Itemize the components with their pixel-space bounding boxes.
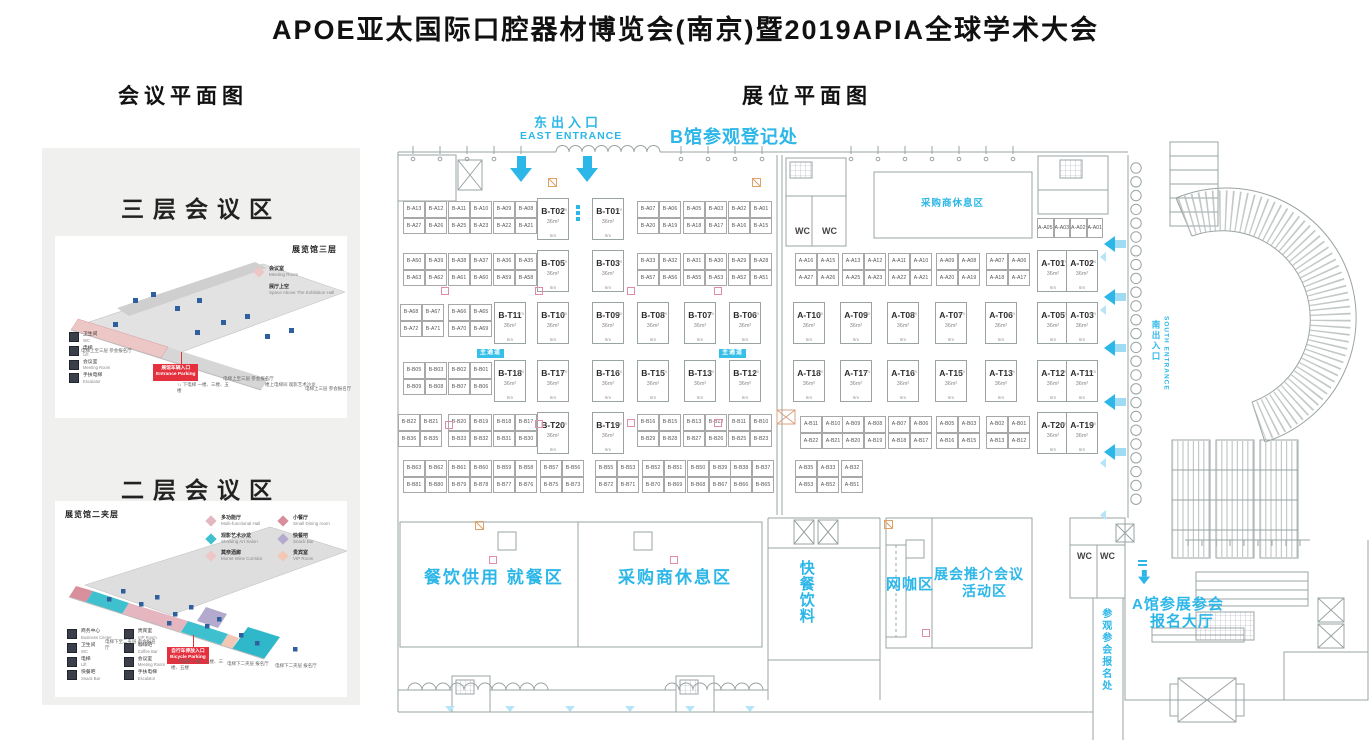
booth-area: 36m² [841, 381, 871, 387]
booth-block: B-B05B-B03B-B09B-B08 [403, 362, 447, 395]
booth: B-A61 [448, 270, 470, 287]
booth-dim: 6m [495, 395, 525, 400]
booth: A-A18 [986, 270, 1008, 287]
booth-block: B-B18B-B17B-B31B-B30 [493, 414, 537, 447]
booth-dim: 6m [794, 337, 824, 342]
utility-marker-icon [922, 629, 930, 637]
booth: A-B15 [958, 433, 980, 450]
booth: A-A10 [910, 253, 932, 270]
booth-dim: 6m [593, 337, 623, 342]
booth: B-B19 [470, 414, 492, 431]
booth-block: B-A13B-A12B-A27B-A26 [403, 201, 447, 234]
booth-dim: 6m [1038, 447, 1068, 452]
booth: B-B68 [687, 477, 709, 494]
booth-dim: 6m [561, 369, 567, 374]
booth-dim: 6m [708, 369, 714, 374]
booth-standard: A-T0136m²6m6m [1037, 250, 1069, 292]
booth-dim: 6m [685, 337, 715, 342]
arrow-down-icon [510, 156, 532, 182]
booth-dim: 6m [616, 311, 622, 316]
booth-block: A-A09A-A08A-A20A-A19 [936, 253, 980, 286]
booth: B-B57 [540, 460, 562, 477]
booth-block: B-B50B-B39B-B68B-B67 [687, 460, 731, 493]
booth-dim: 6m [730, 337, 760, 342]
booth-dim: 6m [1009, 369, 1015, 374]
booth: A-B18 [888, 433, 910, 450]
booth: A-B20 [842, 433, 864, 450]
booth-block: B-A36B-A35B-A59B-A58 [493, 253, 537, 286]
booth: A-A01 [1087, 218, 1104, 238]
booth: A-A23 [864, 270, 886, 287]
booth: B-B25 [728, 431, 750, 448]
booth: B-B66 [730, 477, 752, 494]
booth-block: B-A66B-A65B-A70B-A69 [448, 304, 492, 337]
booth-block: B-B22B-B21B-B36B-B35 [398, 414, 442, 447]
booth-standard: A-T0936m²6m6m [840, 302, 872, 344]
triangle-down-icon [625, 706, 635, 712]
booth: B-B29 [637, 431, 659, 448]
booth: B-A68 [400, 304, 422, 321]
booth: B-A29 [728, 253, 750, 270]
booth-dim: 6m [1090, 311, 1096, 316]
booth: A-B53 [795, 477, 817, 494]
booth-dim: 6m [616, 207, 622, 212]
booth: B-A56 [659, 270, 681, 287]
booth: A-A17 [1008, 270, 1030, 287]
booth: B-A72 [400, 321, 422, 338]
booth-standard: B-T1336m²6m6m [684, 360, 716, 402]
booth: B-A59 [493, 270, 515, 287]
booth: B-B39 [709, 460, 731, 477]
booth-area: 36m² [593, 271, 623, 277]
booth: B-A11 [448, 201, 470, 218]
booth-dim: 6m [538, 395, 568, 400]
utility-marker-icon [535, 287, 543, 295]
booth: B-B67 [709, 477, 731, 494]
booth-dim: 6m [1067, 337, 1097, 342]
booth-block: B-B02B-B01B-B07B-B06 [448, 362, 492, 395]
booth-dim: 6m [794, 395, 824, 400]
booth: A-A20 [936, 270, 958, 287]
booth-area: 36m² [1067, 323, 1097, 329]
booth-standard: B-T0736m²6m6m [684, 302, 716, 344]
floor-label: 报名大厅 [1150, 613, 1214, 631]
booth-dim: 6m [936, 395, 966, 400]
booth: A-B17 [910, 433, 932, 450]
booth-area: 36m² [538, 381, 568, 387]
booth: B-A71 [422, 321, 444, 338]
booth-area: 36m² [593, 323, 623, 329]
booth: B-B03 [425, 362, 447, 379]
booth-dim: 6m [841, 337, 871, 342]
booth-block: B-B11B-B10B-B25B-B23 [728, 414, 772, 447]
utility-marker-icon [714, 419, 722, 427]
booth-block: B-A05B-A03B-A18B-A17 [683, 201, 727, 234]
booth: B-B37 [752, 460, 774, 477]
booth: A-B12 [1008, 433, 1030, 450]
booth: B-A20 [637, 218, 659, 235]
booth: B-B70 [642, 477, 664, 494]
floor-label: 网咖区 [886, 576, 934, 594]
booth: B-B78 [470, 477, 492, 494]
arrow-dash-icon [1138, 564, 1147, 566]
booth-standard: A-T1636m²6m6m [887, 360, 919, 402]
booth: A-B51 [841, 477, 863, 494]
booth: B-B35 [420, 431, 442, 448]
booth-dim: 6m [518, 369, 524, 374]
booth-area: 36m² [888, 381, 918, 387]
booth: A-B22 [800, 433, 822, 450]
booth-dim: 6m [888, 337, 918, 342]
booth-block: A-B05A-B03A-B16A-B15 [936, 416, 980, 449]
booth: B-A21 [515, 218, 537, 235]
booth-area: 36m² [538, 219, 568, 225]
booth-block: B-A50B-A39B-A63B-A62 [403, 253, 447, 286]
booth-block: A-A11A-A10A-A22A-A21 [888, 253, 932, 286]
booth-block: B-A09B-A08B-A22B-A21 [493, 201, 537, 234]
booth: B-B21 [420, 414, 442, 431]
booth: A-B16 [936, 433, 958, 450]
booth-dim: 6m [661, 311, 667, 316]
booth-dim: 6m [593, 233, 623, 238]
booth-strip: A-A05A-A03A-A02A-A01 [1037, 218, 1103, 238]
booth: B-B02 [448, 362, 470, 379]
booth: B-B11 [728, 414, 750, 431]
booth-block: A-B07A-B06A-B18A-B17 [888, 416, 932, 449]
booth-dim: 6m [936, 337, 966, 342]
booth-standard: A-T1836m²6m6m [793, 360, 825, 402]
booth-standard: B-T1936m²6m6m [592, 412, 624, 454]
aisle-dots-icon [576, 205, 580, 223]
booth: B-B16 [637, 414, 659, 431]
floor-label: SOUTH ENTRANCE [1162, 316, 1170, 391]
booth-dim: 6m [561, 259, 567, 264]
booth-block: A-B09A-B08A-B20A-B19 [842, 416, 886, 449]
booth-area: 36m² [495, 381, 525, 387]
booth: B-B59 [493, 460, 515, 477]
booth-block: B-A02B-A01B-A16B-A15 [728, 201, 772, 234]
booth-dim: 6m [561, 207, 567, 212]
booth-block: A-A07A-A06A-A18A-A17 [986, 253, 1030, 286]
booth: A-A27 [795, 270, 817, 287]
booth: A-B13 [986, 433, 1008, 450]
booth-area: 36m² [593, 219, 623, 225]
booth: B-A05 [683, 201, 705, 218]
booth: A-A06 [1008, 253, 1030, 270]
booth: B-B33 [448, 431, 470, 448]
booth: B-B22 [398, 414, 420, 431]
floor-label: 采购商休息区 [921, 198, 984, 209]
booth: B-B50 [687, 460, 709, 477]
booth-area: 36m² [538, 323, 568, 329]
booth-standard: A-T2036m²6m6m [1037, 412, 1069, 454]
booth-block: B-B52B-B51B-B70B-B69 [642, 460, 686, 493]
booth-block: B-B55B-B53B-B72B-B71 [595, 460, 639, 493]
booth-dim: 6m [864, 311, 870, 316]
booth-area: 36m² [1038, 271, 1068, 277]
booth: A-B32 [841, 460, 863, 477]
booth-block: A-A13A-A12A-A25A-A23 [842, 253, 886, 286]
arrow-left-icon [1104, 394, 1126, 410]
booth: B-A33 [637, 253, 659, 270]
floor-label: 活动区 [962, 583, 1007, 600]
floor-label: B馆参观登记处 [670, 127, 798, 148]
booth-dim: 6m [1067, 447, 1097, 452]
booth-standard: B-T2036m²6m6m [537, 412, 569, 454]
booth-block: A-A16A-A15A-A27A-A26 [795, 253, 839, 286]
booth-standard: B-T1236m²6m6m [729, 360, 761, 402]
booth: B-B81 [403, 477, 425, 494]
booth-standard: B-T0236m²6m6m [537, 198, 569, 240]
booth: B-A62 [425, 270, 447, 287]
booth: A-B52 [817, 477, 839, 494]
booth: B-A31 [683, 253, 705, 270]
booth: B-B55 [595, 460, 617, 477]
booth-dim: 6m [1090, 421, 1096, 426]
booth-area: 36m² [538, 271, 568, 277]
booth: B-B23 [750, 431, 772, 448]
utility-marker-icon [489, 556, 497, 564]
booth-dim: 6m [638, 395, 668, 400]
booth: B-A08 [515, 201, 537, 218]
floor-label: 参观参会报名处 [1099, 608, 1111, 692]
booth-dim: 6m [888, 395, 918, 400]
booth-block: A-B02A-B01A-B13A-B12 [986, 416, 1030, 449]
booth-area: 36m² [841, 323, 871, 329]
booth-dim: 6m [616, 421, 622, 426]
booth: B-A26 [425, 218, 447, 235]
arrow-down-icon [576, 156, 598, 182]
booth-dim: 6m [959, 369, 965, 374]
booth: B-A18 [683, 218, 705, 235]
booth: A-B33 [817, 460, 839, 477]
booth-block: B-A29B-A28B-A52B-A51 [728, 253, 772, 286]
booth: A-B21 [822, 433, 844, 450]
booth-area: 36m² [495, 323, 525, 329]
booth: B-B32 [470, 431, 492, 448]
booth-dim: 6m [593, 285, 623, 290]
booth-standard: B-T0936m²6m6m [592, 302, 624, 344]
booth: A-B06 [910, 416, 932, 433]
utility-marker-icon [714, 287, 722, 295]
booth: B-B18 [493, 414, 515, 431]
booth: A-A12 [864, 253, 886, 270]
booth-standard: B-T0636m²6m6m [729, 302, 761, 344]
booth-standard: B-T0136m²6m6m [592, 198, 624, 240]
booth: A-A05 [1037, 218, 1054, 238]
booth: A-B09 [842, 416, 864, 433]
booth-block: B-B63B-B62B-B81B-B80 [403, 460, 447, 493]
booth-area: 36m² [1067, 433, 1097, 439]
booth-standard: B-T1836m²6m6m [494, 360, 526, 402]
utility-marker-icon [627, 419, 635, 427]
booth-dim: 6m [1009, 311, 1015, 316]
booth-standard: A-T1136m²6m6m [1066, 360, 1098, 402]
booth: B-A22 [493, 218, 515, 235]
booth-block: B-A33B-A32B-A57B-A56 [637, 253, 681, 286]
booth-block: B-B61B-B60B-B79B-B78 [448, 460, 492, 493]
booth-standard: B-T0336m²6m6m [592, 250, 624, 292]
booth: B-B36 [398, 431, 420, 448]
booth: B-A63 [403, 270, 425, 287]
booth: B-B58 [515, 460, 537, 477]
booth: A-B11 [800, 416, 822, 433]
booth-standard: A-T1036m²6m6m [793, 302, 825, 344]
booth: B-B05 [403, 362, 425, 379]
booth-dim: 6m [638, 337, 668, 342]
booth: B-A19 [659, 218, 681, 235]
booth-dim: 6m [538, 233, 568, 238]
booth-area: 36m² [593, 433, 623, 439]
booth: B-A16 [728, 218, 750, 235]
booth-standard: B-T1736m²6m6m [537, 360, 569, 402]
booth: B-A27 [403, 218, 425, 235]
booth: A-A03 [1054, 218, 1071, 238]
booth: A-A11 [888, 253, 910, 270]
booth: B-B38 [730, 460, 752, 477]
booth: B-A13 [403, 201, 425, 218]
booth: B-A38 [448, 253, 470, 270]
booth: A-A26 [817, 270, 839, 287]
booth-standard: A-T1736m²6m6m [840, 360, 872, 402]
booth: B-A12 [425, 201, 447, 218]
booth-dim: 6m [817, 311, 823, 316]
booth-dim: 6m [1090, 259, 1096, 264]
booth: B-B01 [470, 362, 492, 379]
booth-dim: 6m [495, 337, 525, 342]
booth: B-A32 [659, 253, 681, 270]
booth: B-A66 [448, 304, 470, 321]
booth-dim: 6m [841, 395, 871, 400]
booth-dim: 6m [593, 447, 623, 452]
booth-area: 36m² [986, 381, 1016, 387]
booth-area: 36m² [986, 323, 1016, 329]
booth-area: 36m² [1038, 323, 1068, 329]
booth-area: 36m² [685, 381, 715, 387]
booth-block: A-B11A-B10A-B22A-B21 [800, 416, 844, 449]
floor-label: WC [822, 226, 837, 237]
triangle-down-icon [745, 706, 755, 712]
triangle-left-icon [1100, 252, 1106, 262]
booth-standard: A-T1536m²6m6m [935, 360, 967, 402]
page: APOE亚太国际口腔器材博览会(南京)暨2019APIA全球学术大会 会议平面图… [0, 0, 1371, 740]
booth: B-A01 [750, 201, 772, 218]
booth-standard: A-T0736m²6m6m [935, 302, 967, 344]
utility-marker-icon [441, 287, 449, 295]
triangle-down-icon [685, 706, 695, 712]
booth: B-B76 [515, 477, 537, 494]
booth-area: 36m² [638, 323, 668, 329]
booth-dim: 6m [1038, 337, 1068, 342]
utility-marker-icon [752, 178, 761, 187]
booth: B-A53 [705, 270, 727, 287]
booth: B-B61 [448, 460, 470, 477]
booth-standard: A-T0336m²6m6m [1066, 302, 1098, 344]
arrow-left-icon [1104, 340, 1126, 356]
booth: A-B02 [986, 416, 1008, 433]
booth-dim: 6m [864, 369, 870, 374]
booth: B-B77 [493, 477, 515, 494]
triangle-down-icon [445, 706, 455, 712]
booth: B-A30 [705, 253, 727, 270]
booth: A-A13 [842, 253, 864, 270]
booth-block: B-B59B-B58B-B77B-B76 [493, 460, 537, 493]
booth: B-A51 [750, 270, 772, 287]
booth-standard: B-T1536m²6m6m [637, 360, 669, 402]
booth: B-B13 [683, 414, 705, 431]
booth: B-B72 [595, 477, 617, 494]
booth: B-B73 [562, 477, 584, 494]
booth: A-B01 [1008, 416, 1030, 433]
booth-standard: B-T1636m²6m6m [592, 360, 624, 402]
floor-label: 采购商休息区 [618, 568, 732, 588]
booth: B-A67 [422, 304, 444, 321]
booth-standard: A-T0836m²6m6m [887, 302, 919, 344]
booth-block: B-B20B-B19B-B33B-B32 [448, 414, 492, 447]
booth: B-B80 [425, 477, 447, 494]
utility-marker-icon [475, 521, 484, 530]
booth-dim: 6m [817, 369, 823, 374]
booth-block: B-A07B-A06B-A20B-A19 [637, 201, 681, 234]
booth: B-A52 [728, 270, 750, 287]
booth-dim: 6m [518, 311, 524, 316]
booth: B-A15 [750, 218, 772, 235]
booth-block: B-A68B-A67B-A72B-A71 [400, 304, 444, 337]
booth-area: 36m² [730, 381, 760, 387]
booth: B-A06 [659, 201, 681, 218]
booth: B-A02 [728, 201, 750, 218]
booth-standard: B-T0836m²6m6m [637, 302, 669, 344]
booth-dim: 6m [538, 447, 568, 452]
booth: A-A22 [888, 270, 910, 287]
booth-block: B-B16B-B15B-B29B-B28 [637, 414, 681, 447]
triangle-down-icon [565, 706, 575, 712]
booth-dim: 6m [593, 395, 623, 400]
floor-label: 东出入口 [534, 115, 602, 130]
booth-standard: B-T1036m²6m6m [537, 302, 569, 344]
booth: B-B10 [750, 414, 772, 431]
booth-dim: 6m [911, 311, 917, 316]
booth-standard: B-T0536m²6m6m [537, 250, 569, 292]
utility-marker-icon [670, 556, 678, 564]
booth-area: 36m² [1067, 381, 1097, 387]
booth: B-B15 [659, 414, 681, 431]
booth: B-B53 [617, 460, 639, 477]
booth-dim: 6m [661, 369, 667, 374]
booth-area: 36m² [794, 323, 824, 329]
booth-dim: 6m [708, 311, 714, 316]
triangle-down-icon [505, 706, 515, 712]
booth-floor-plan: 东出入口EAST ENTRANCEB馆参观登记处采购商休息区WCWC餐饮供用 就… [0, 0, 1371, 740]
floor-label: WC [1100, 551, 1115, 562]
booth-block: B-B38B-B37B-B66B-B65 [730, 460, 774, 493]
booth: B-A60 [470, 270, 492, 287]
booth: B-B63 [403, 460, 425, 477]
booth-dim: 6m [753, 311, 759, 316]
booth: B-B71 [617, 477, 639, 494]
booth: B-B75 [540, 477, 562, 494]
booth: B-B69 [664, 477, 686, 494]
booth: A-A16 [795, 253, 817, 270]
booth: B-B06 [470, 379, 492, 396]
booth-area: 36m² [936, 381, 966, 387]
utility-marker-icon [884, 520, 893, 529]
arrow-left-icon [1104, 236, 1126, 252]
aisle-chip: 主通道 [477, 349, 504, 358]
booth-area: 36m² [1038, 381, 1068, 387]
booth-area: 36m² [1067, 271, 1097, 277]
booth-dim: 6m [986, 337, 1016, 342]
